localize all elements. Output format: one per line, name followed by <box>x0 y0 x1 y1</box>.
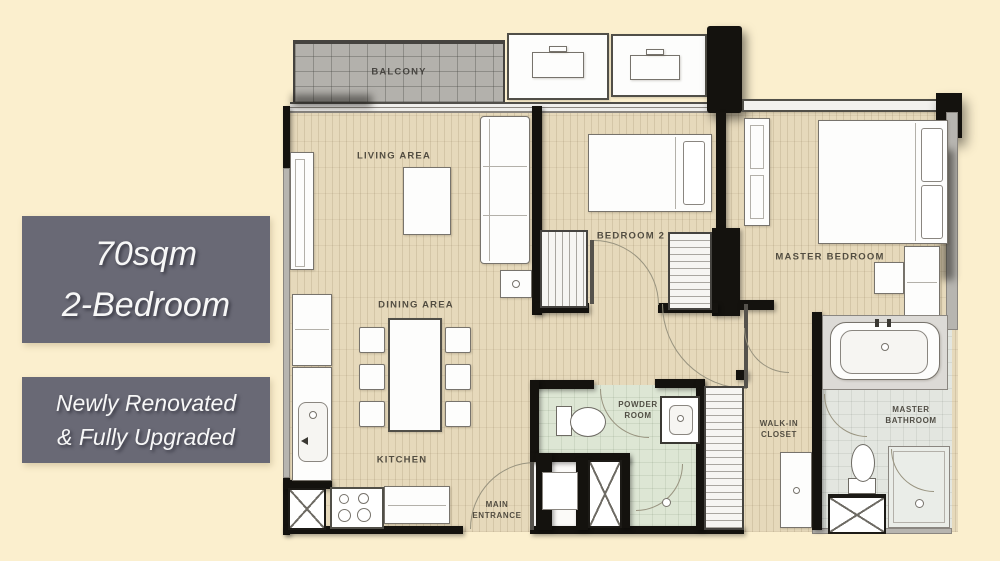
promo-line1: Newly Renovated <box>56 386 236 421</box>
bathtub <box>830 322 940 380</box>
fridge-door-line <box>295 329 329 330</box>
wardrobe-door-line <box>750 125 764 169</box>
door-leaf <box>590 240 594 304</box>
room-label-bedroom2: BEDROOM 2 <box>597 231 665 244</box>
wardrobe <box>668 232 712 310</box>
shadow-smudge <box>292 95 372 107</box>
tv-console <box>290 152 314 270</box>
wardrobe-door-line <box>750 175 764 219</box>
drain-icon <box>915 499 924 508</box>
promo-line2: & Fully Upgraded <box>57 420 235 455</box>
tub-basin <box>840 330 928 374</box>
room-label-master-bedroom: MASTER BEDROOM <box>775 252 884 265</box>
unit-size-line2: 2-Bedroom <box>62 280 230 331</box>
bed-double <box>818 120 948 244</box>
dining-chair <box>445 401 471 427</box>
wall <box>283 106 290 168</box>
door-leaf <box>530 462 534 530</box>
blanket-line <box>915 123 916 241</box>
plant-icon <box>512 280 520 288</box>
unit-size-line1: 70sqm <box>95 229 197 280</box>
pillow <box>921 185 943 239</box>
shower-tray-line <box>893 451 945 523</box>
bed-single <box>588 134 712 212</box>
unit-size-badge: 70sqm 2-Bedroom <box>22 216 270 343</box>
sofa-seat-line <box>489 119 490 261</box>
pillow <box>921 128 943 182</box>
wall <box>530 380 594 389</box>
dining-chair <box>359 401 385 427</box>
dining-chair <box>445 327 471 353</box>
kitchen-sink <box>298 402 328 462</box>
master-window-wall <box>742 99 954 112</box>
room-label-powder-room: POWDER ROOM <box>618 400 658 422</box>
room-label-living-area: LIVING AREA <box>357 151 431 164</box>
dining-table <box>388 318 442 432</box>
wall <box>812 312 822 530</box>
faucet-arrow-icon <box>301 437 308 445</box>
window-wall <box>283 168 290 478</box>
side-table <box>500 270 532 298</box>
dresser <box>780 452 812 528</box>
room-label-dining-area: DINING AREA <box>378 300 454 313</box>
column <box>707 26 742 113</box>
burner-icon <box>358 493 369 504</box>
ac-unit-icon <box>630 55 680 80</box>
toilet-icon <box>570 407 606 437</box>
room-label-master-bathroom: MASTER BATHROOM <box>885 405 936 427</box>
faucet-icon <box>875 319 879 327</box>
blanket-line <box>675 137 676 209</box>
dining-chair <box>445 364 471 390</box>
room-label-kitchen: KITCHEN <box>377 455 428 468</box>
pillow <box>683 141 705 205</box>
dining-chair <box>359 327 385 353</box>
drain-icon <box>677 415 684 422</box>
faucet-icon <box>887 319 891 327</box>
burner-icon <box>338 509 351 522</box>
room-label-balcony: BALCONY <box>371 67 426 80</box>
stove <box>330 487 384 529</box>
shaft <box>588 460 622 528</box>
wall <box>716 112 726 230</box>
room-label-main-entrance: MAIN ENTRANCE <box>472 500 521 522</box>
shaft <box>288 488 326 530</box>
ac-unit-icon <box>532 52 584 78</box>
tv-icon <box>295 159 305 267</box>
faucet-icon <box>309 411 317 419</box>
sofa <box>480 116 530 264</box>
room-label-walk-in-closet: WALK-IN CLOSET <box>760 419 798 441</box>
coffee-table <box>403 167 451 235</box>
bench <box>874 262 904 294</box>
promo-badge: Newly Renovated & Fully Upgraded <box>22 377 270 463</box>
kitchen-counter-2 <box>384 486 450 524</box>
window-mullion <box>290 107 710 108</box>
knob-icon <box>793 487 800 494</box>
ac-pipe <box>549 46 567 52</box>
wardrobe-tall <box>744 118 770 226</box>
shower <box>888 446 950 528</box>
wardrobe <box>540 230 588 308</box>
toilet-icon <box>851 444 875 482</box>
drain-icon <box>881 343 889 351</box>
dining-chair <box>359 364 385 390</box>
burner-icon <box>357 508 371 522</box>
counter-line <box>388 505 446 506</box>
shaft <box>828 494 886 534</box>
ac-pipe <box>646 49 664 55</box>
wardrobe <box>704 386 744 530</box>
washer <box>542 472 578 510</box>
vanity <box>660 396 700 444</box>
door-leaf <box>744 304 748 388</box>
fridge <box>292 294 332 366</box>
nightstand <box>904 246 940 318</box>
floorplan-page: 70sqm 2-Bedroom Newly Renovated & Fully … <box>0 0 1000 561</box>
nightstand-line <box>907 282 937 283</box>
drain-icon <box>662 498 671 507</box>
wall <box>530 380 539 461</box>
burner-icon <box>339 494 349 504</box>
